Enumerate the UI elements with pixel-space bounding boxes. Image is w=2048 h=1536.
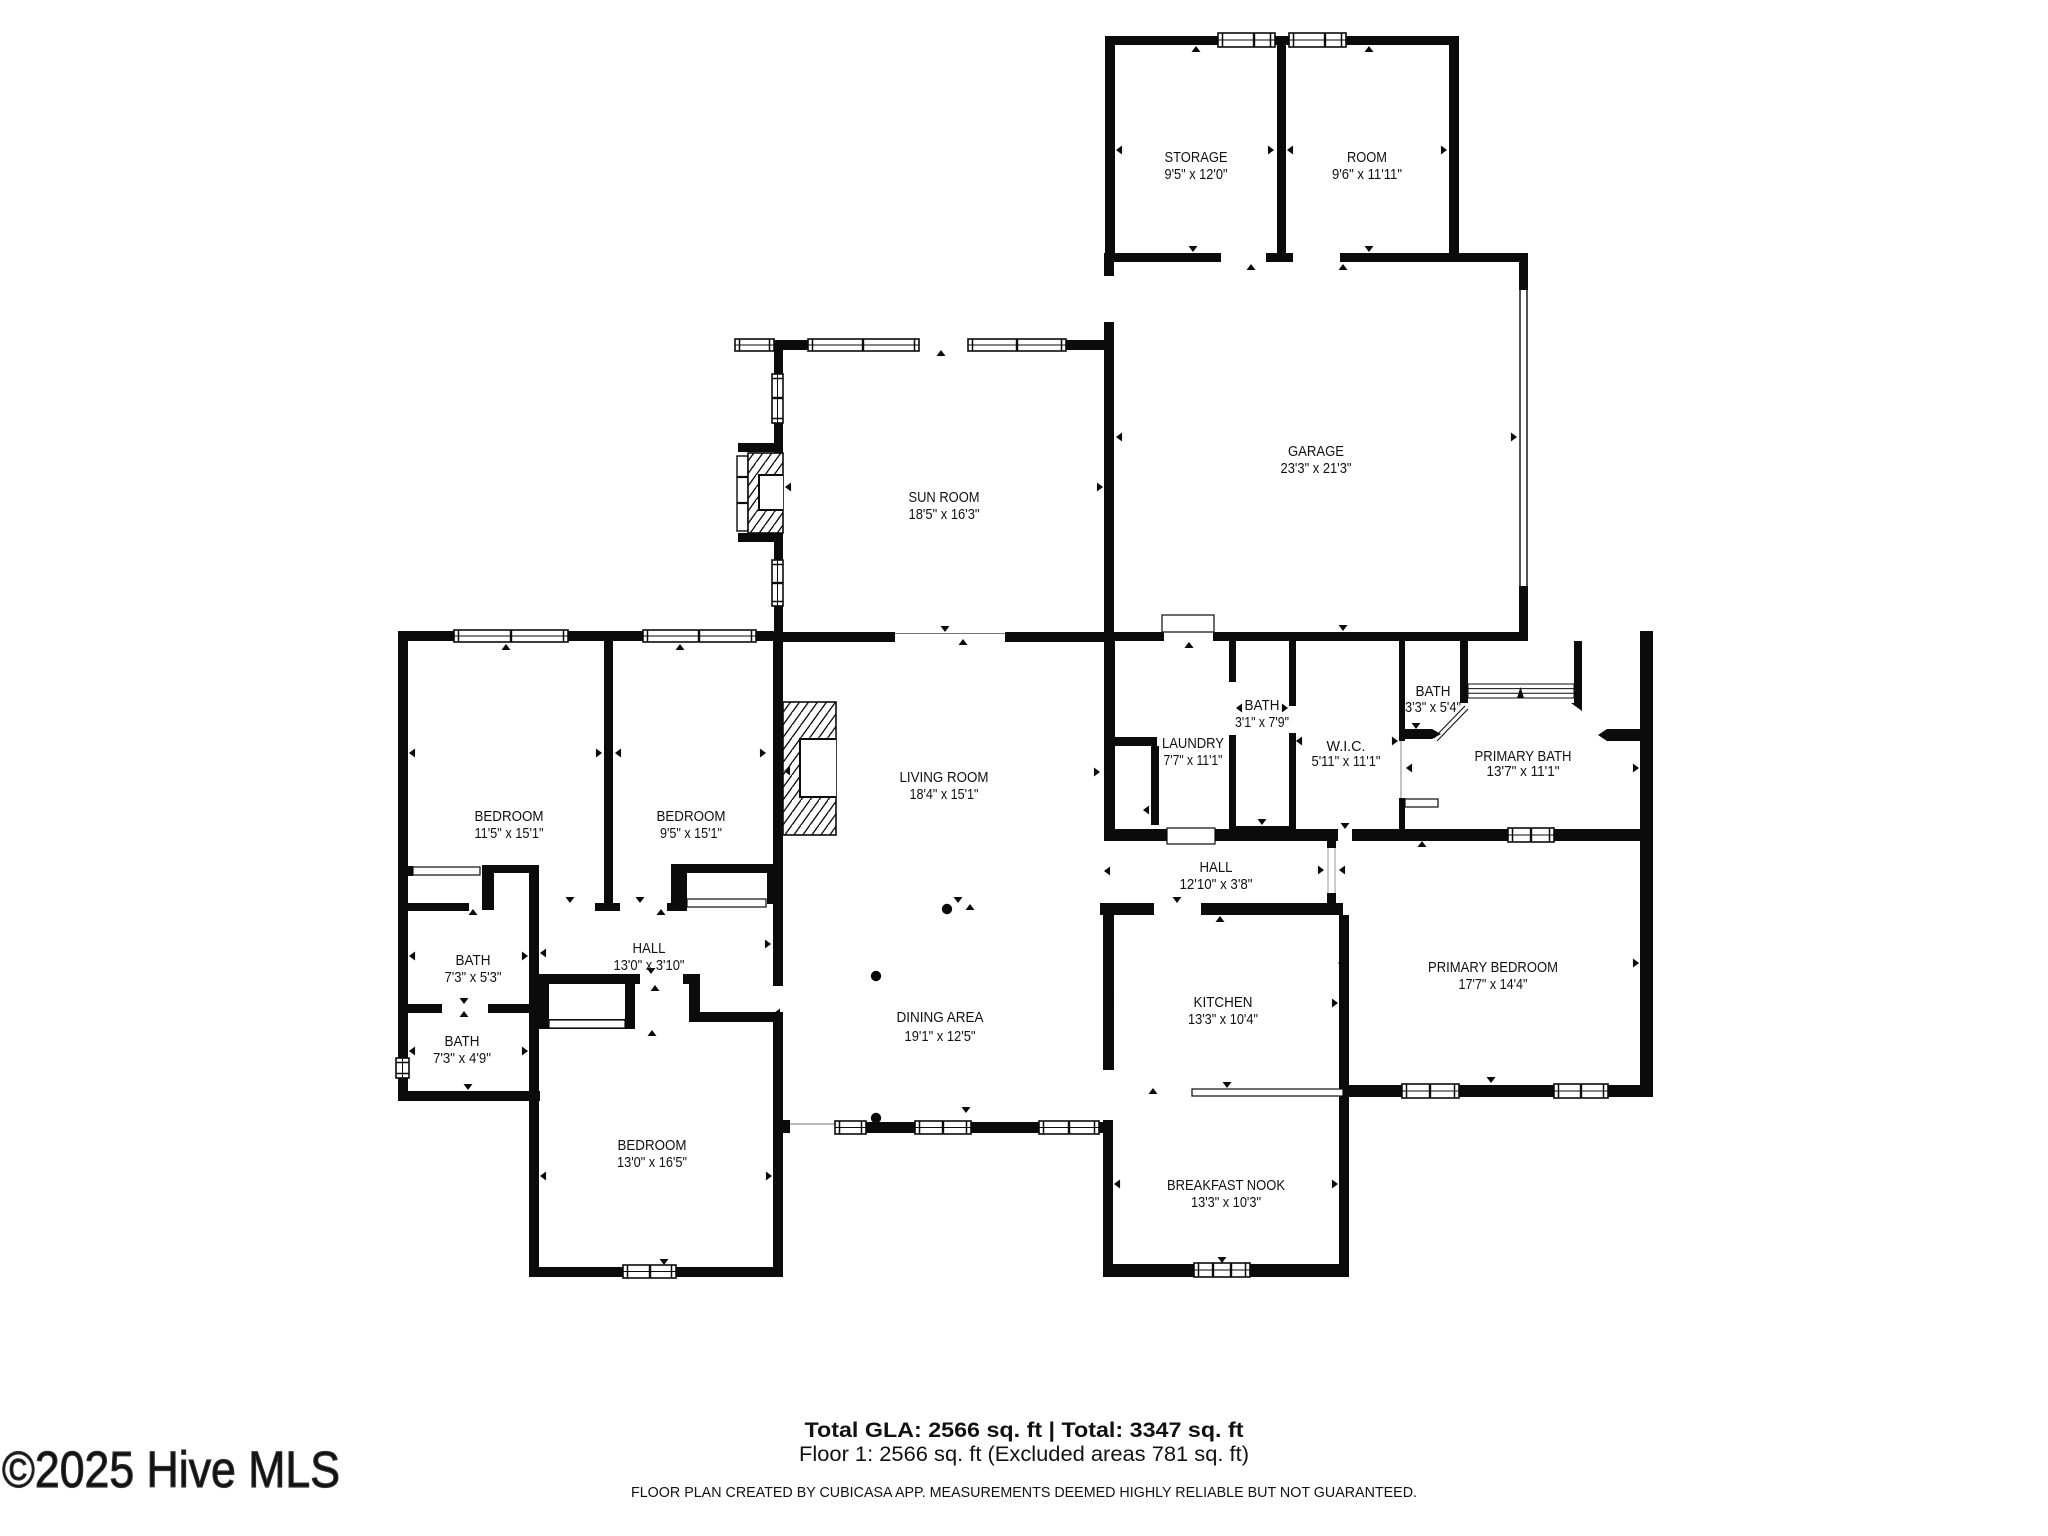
svg-text:17'7" x 14'4": 17'7" x 14'4"	[1459, 976, 1528, 993]
svg-text:STORAGE: STORAGE	[1165, 149, 1228, 166]
svg-text:23'3" x 21'3": 23'3" x 21'3"	[1281, 460, 1352, 477]
svg-text:HALL: HALL	[633, 940, 666, 957]
svg-text:9'5" x 12'0": 9'5" x 12'0"	[1165, 166, 1228, 183]
svg-text:BATH: BATH	[1416, 683, 1451, 700]
svg-text:9'6" x 11'11": 9'6" x 11'11"	[1332, 166, 1402, 183]
svg-text:HALL: HALL	[1200, 859, 1233, 876]
svg-text:19'1" x 12'5": 19'1" x 12'5"	[905, 1028, 976, 1045]
svg-text:BATH: BATH	[456, 952, 491, 969]
svg-text:BREAKFAST NOOK: BREAKFAST NOOK	[1167, 1177, 1285, 1194]
svg-text:Floor 1: 2566 sq. ft (Excluded: Floor 1: 2566 sq. ft (Excluded areas 781…	[799, 1443, 1249, 1466]
svg-text:18'4" x 15'1": 18'4" x 15'1"	[910, 786, 979, 803]
svg-text:PRIMARY BEDROOM: PRIMARY BEDROOM	[1428, 959, 1558, 976]
svg-text:DINING AREA: DINING AREA	[897, 1009, 984, 1026]
svg-text:BEDROOM: BEDROOM	[618, 1137, 687, 1154]
svg-text:9'5" x 15'1": 9'5" x 15'1"	[660, 825, 722, 842]
svg-text:ROOM: ROOM	[1347, 149, 1387, 166]
svg-text:3'1" x 7'9": 3'1" x 7'9"	[1235, 714, 1289, 731]
svg-text:BATH: BATH	[1245, 697, 1280, 714]
svg-text:KITCHEN: KITCHEN	[1194, 994, 1253, 1011]
svg-text:13'0" x 3'10": 13'0" x 3'10"	[614, 957, 685, 974]
svg-text:3'3" x 5'4": 3'3" x 5'4"	[1405, 699, 1461, 716]
svg-text:Total GLA: 2566 sq. ft | Total: Total GLA: 2566 sq. ft | Total: 3347 sq.…	[805, 1418, 1244, 1442]
svg-text:7'7" x 11'1": 7'7" x 11'1"	[1164, 752, 1223, 769]
svg-text:7'3" x 4'9": 7'3" x 4'9"	[433, 1050, 491, 1067]
svg-text:BATH: BATH	[445, 1033, 480, 1050]
svg-text:GARAGE: GARAGE	[1288, 443, 1344, 460]
svg-text:BEDROOM: BEDROOM	[657, 808, 726, 825]
svg-text:LIVING ROOM: LIVING ROOM	[900, 769, 989, 786]
svg-text:13'3" x 10'3": 13'3" x 10'3"	[1191, 1194, 1261, 1211]
svg-text:LAUNDRY: LAUNDRY	[1162, 735, 1224, 752]
svg-text:13'7" x 11'1": 13'7" x 11'1"	[1487, 763, 1560, 780]
svg-text:FLOOR PLAN CREATED BY CUBICASA: FLOOR PLAN CREATED BY CUBICASA APP. MEAS…	[631, 1484, 1417, 1501]
svg-text:BEDROOM: BEDROOM	[475, 808, 544, 825]
svg-text:13'3" x 10'4": 13'3" x 10'4"	[1188, 1011, 1258, 1028]
svg-text:11'5" x 15'1": 11'5" x 15'1"	[475, 825, 544, 842]
svg-text:SUN ROOM: SUN ROOM	[909, 489, 980, 506]
svg-text:5'11" x 11'1": 5'11" x 11'1"	[1312, 753, 1381, 770]
svg-text:©2025 Hive MLS: ©2025 Hive MLS	[2, 1441, 340, 1498]
svg-text:7'3" x 5'3": 7'3" x 5'3"	[445, 969, 502, 986]
svg-text:12'10" x 3'8": 12'10" x 3'8"	[1180, 876, 1253, 893]
svg-text:18'5" x 16'3": 18'5" x 16'3"	[909, 506, 980, 523]
svg-text:13'0" x 16'5": 13'0" x 16'5"	[617, 1154, 687, 1171]
